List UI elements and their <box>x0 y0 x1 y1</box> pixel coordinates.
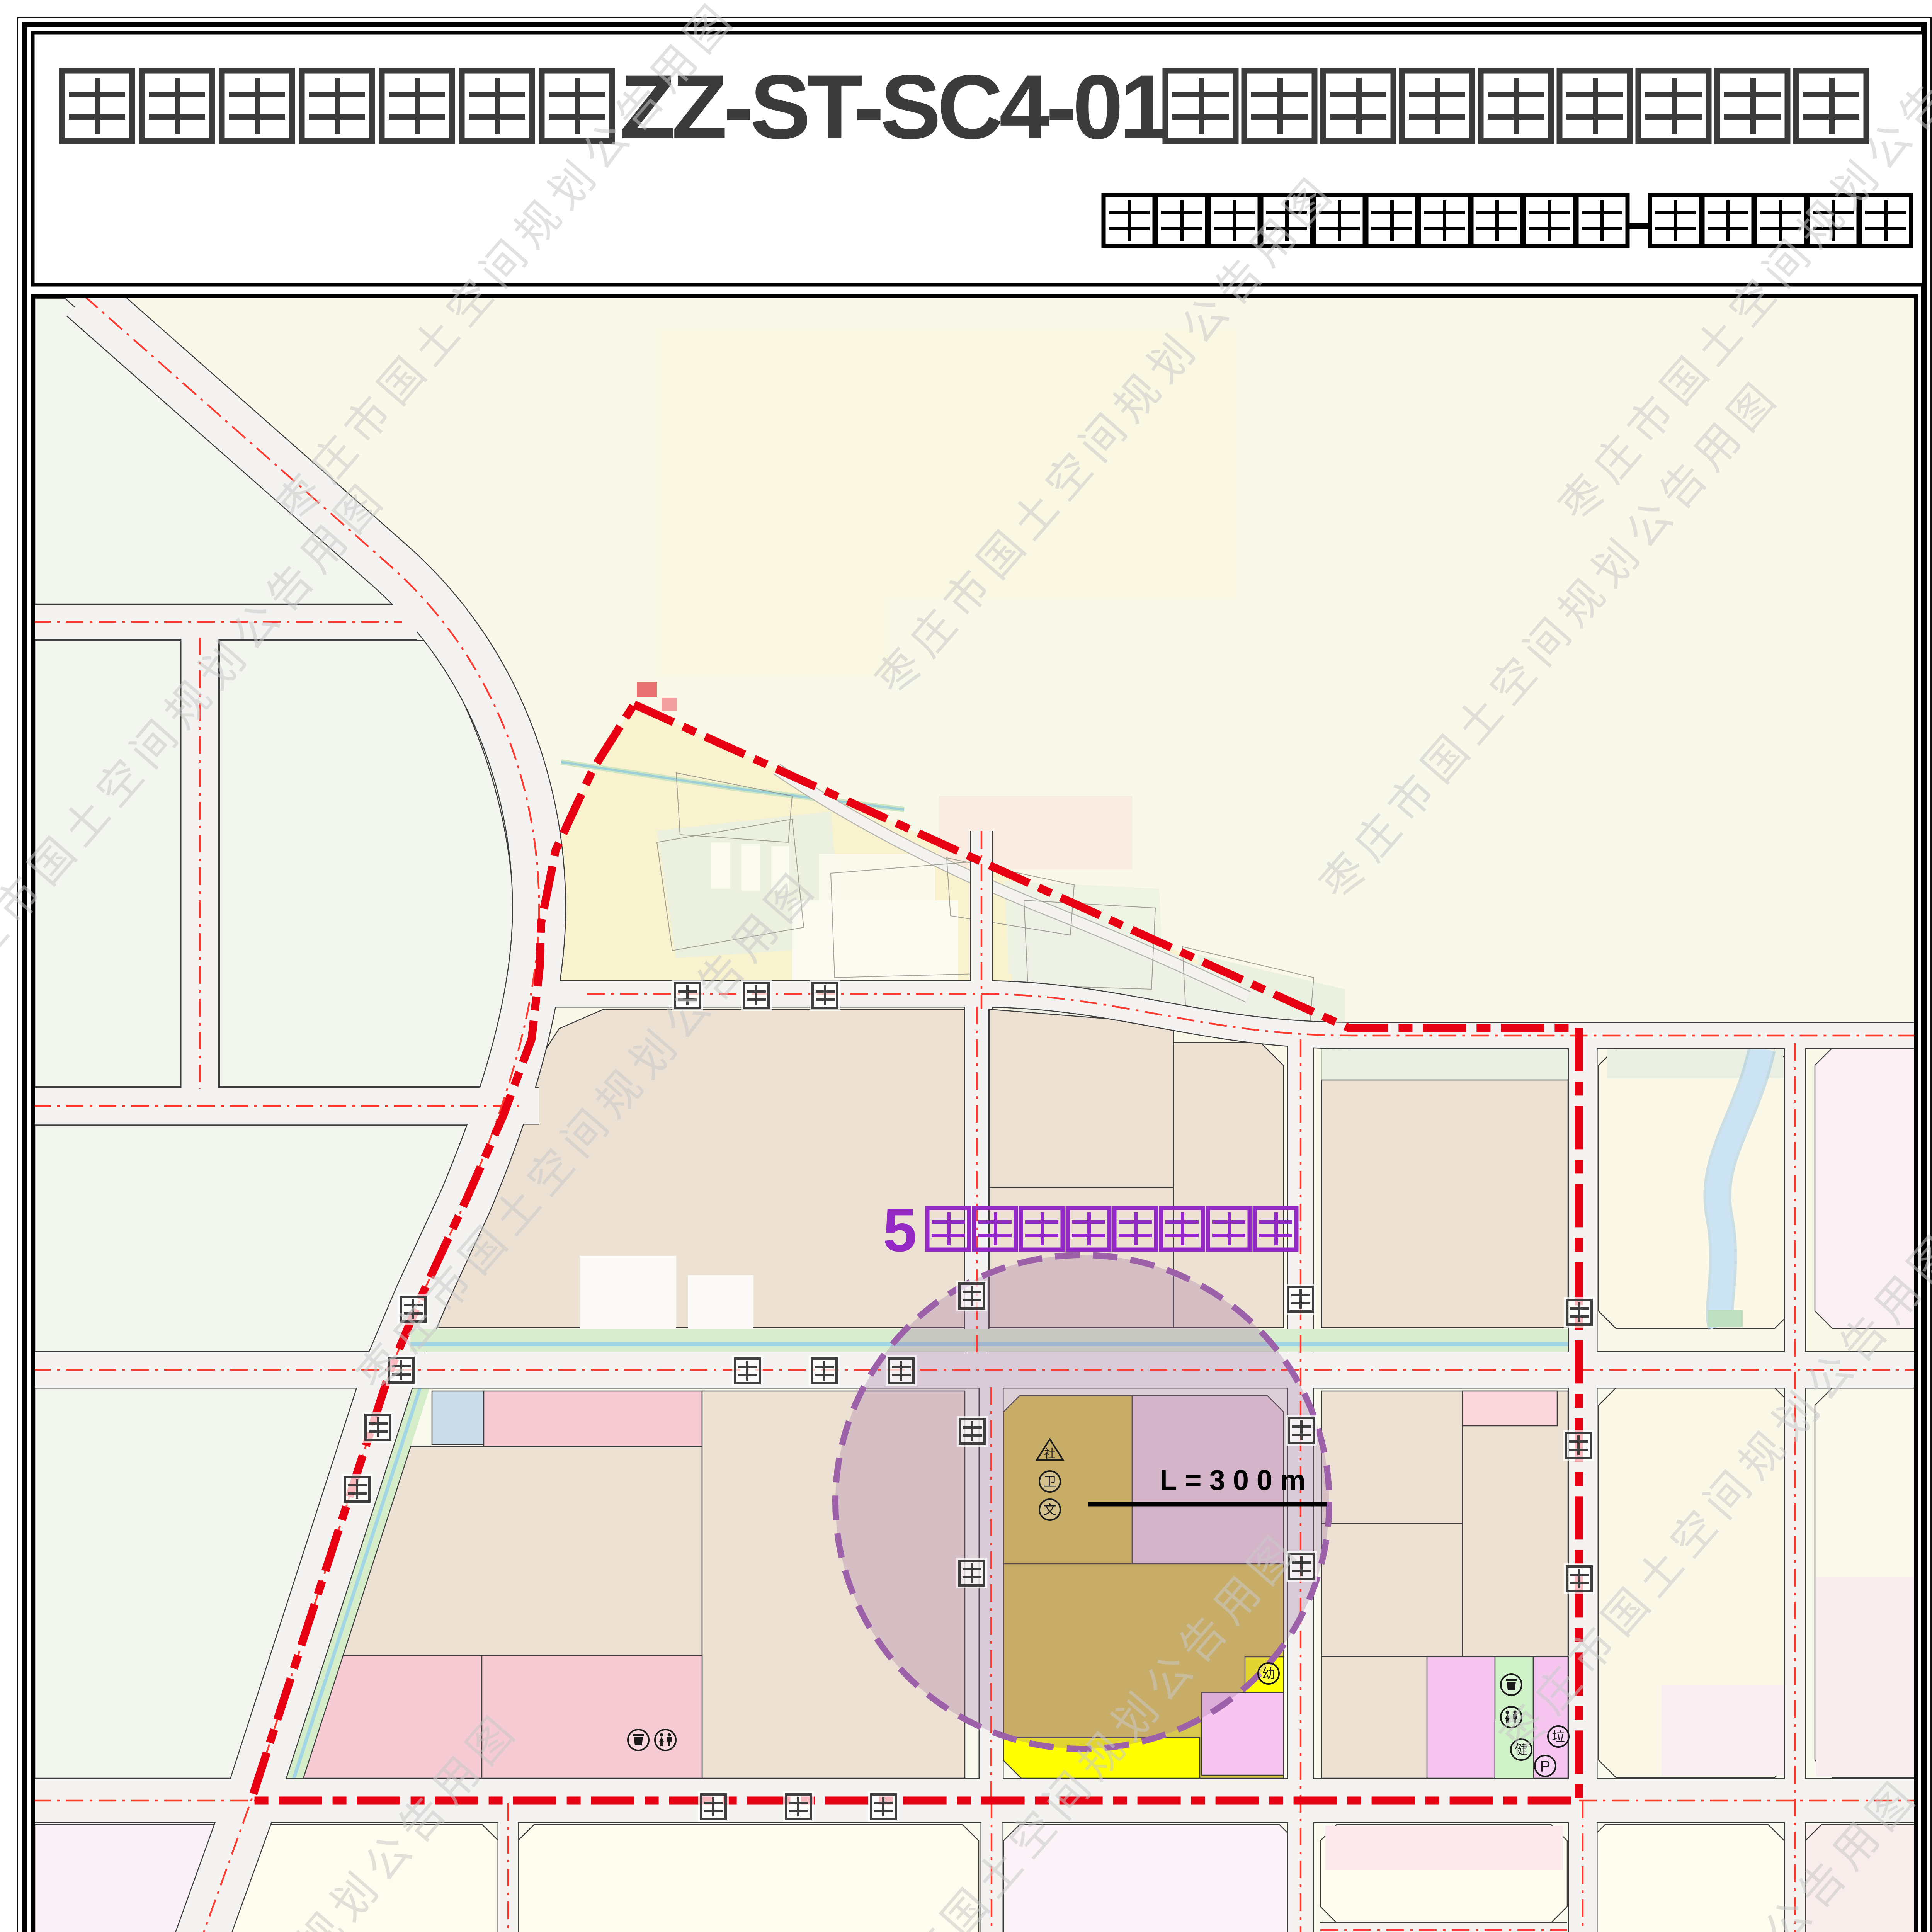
svg-text:社: 社 <box>1044 1447 1056 1460</box>
svg-text:P: P <box>1540 1758 1551 1775</box>
svg-text:L=300m: L=300m <box>1160 1464 1313 1496</box>
svg-text:文: 文 <box>1043 1503 1056 1517</box>
svg-text:卫: 卫 <box>1043 1475 1056 1489</box>
svg-text:幼: 幼 <box>1262 1667 1275 1681</box>
svg-text:5: 5 <box>883 1196 917 1264</box>
